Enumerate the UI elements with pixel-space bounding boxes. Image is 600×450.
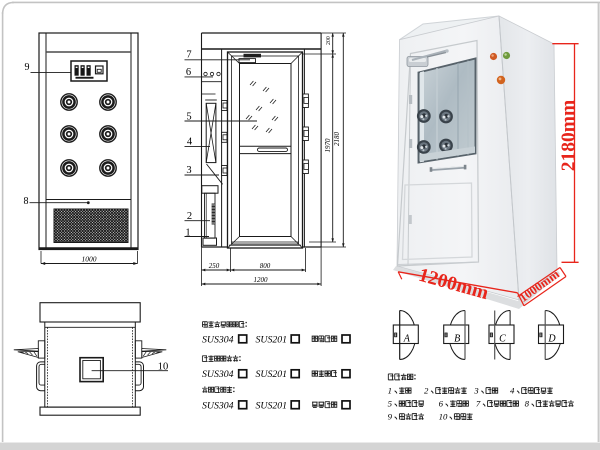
svg-text:SUS304: SUS304 <box>202 400 234 411</box>
svg-text:800: 800 <box>260 262 271 270</box>
svg-text:3: 3 <box>186 165 191 176</box>
svg-text:6: 6 <box>439 399 444 409</box>
svg-text:1200: 1200 <box>254 276 269 284</box>
svg-text:9: 9 <box>388 412 393 422</box>
svg-text:10: 10 <box>439 412 448 422</box>
svg-text:7: 7 <box>186 50 191 61</box>
svg-text:250: 250 <box>209 262 220 270</box>
svg-text:1000: 1000 <box>82 255 97 264</box>
svg-text:SUS201: SUS201 <box>256 369 288 380</box>
svg-text:C: C <box>499 334 506 345</box>
svg-text:2180: 2180 <box>333 132 341 147</box>
svg-text:4: 4 <box>187 137 193 148</box>
svg-text:3: 3 <box>473 386 479 396</box>
svg-text:SUS201: SUS201 <box>256 400 288 411</box>
svg-text:8: 8 <box>525 399 530 409</box>
svg-text:200: 200 <box>326 36 332 45</box>
svg-text:2: 2 <box>424 386 429 396</box>
svg-text:SUS201: SUS201 <box>256 334 288 345</box>
svg-text:8: 8 <box>24 196 29 207</box>
svg-text:2180mm: 2180mm <box>559 100 580 172</box>
svg-text:10: 10 <box>158 361 169 372</box>
svg-text:A: A <box>403 334 411 345</box>
svg-text:D: D <box>547 334 556 345</box>
svg-text:B: B <box>454 334 460 345</box>
svg-text:SUS304: SUS304 <box>202 369 234 380</box>
svg-text:1970: 1970 <box>324 138 332 153</box>
svg-text:9: 9 <box>25 62 30 73</box>
svg-text:5: 5 <box>388 399 393 409</box>
svg-text:SUS304: SUS304 <box>202 334 234 345</box>
svg-text:4: 4 <box>510 386 515 396</box>
svg-text:7: 7 <box>476 399 481 409</box>
svg-text:1: 1 <box>388 386 392 396</box>
svg-text:6: 6 <box>186 67 191 78</box>
